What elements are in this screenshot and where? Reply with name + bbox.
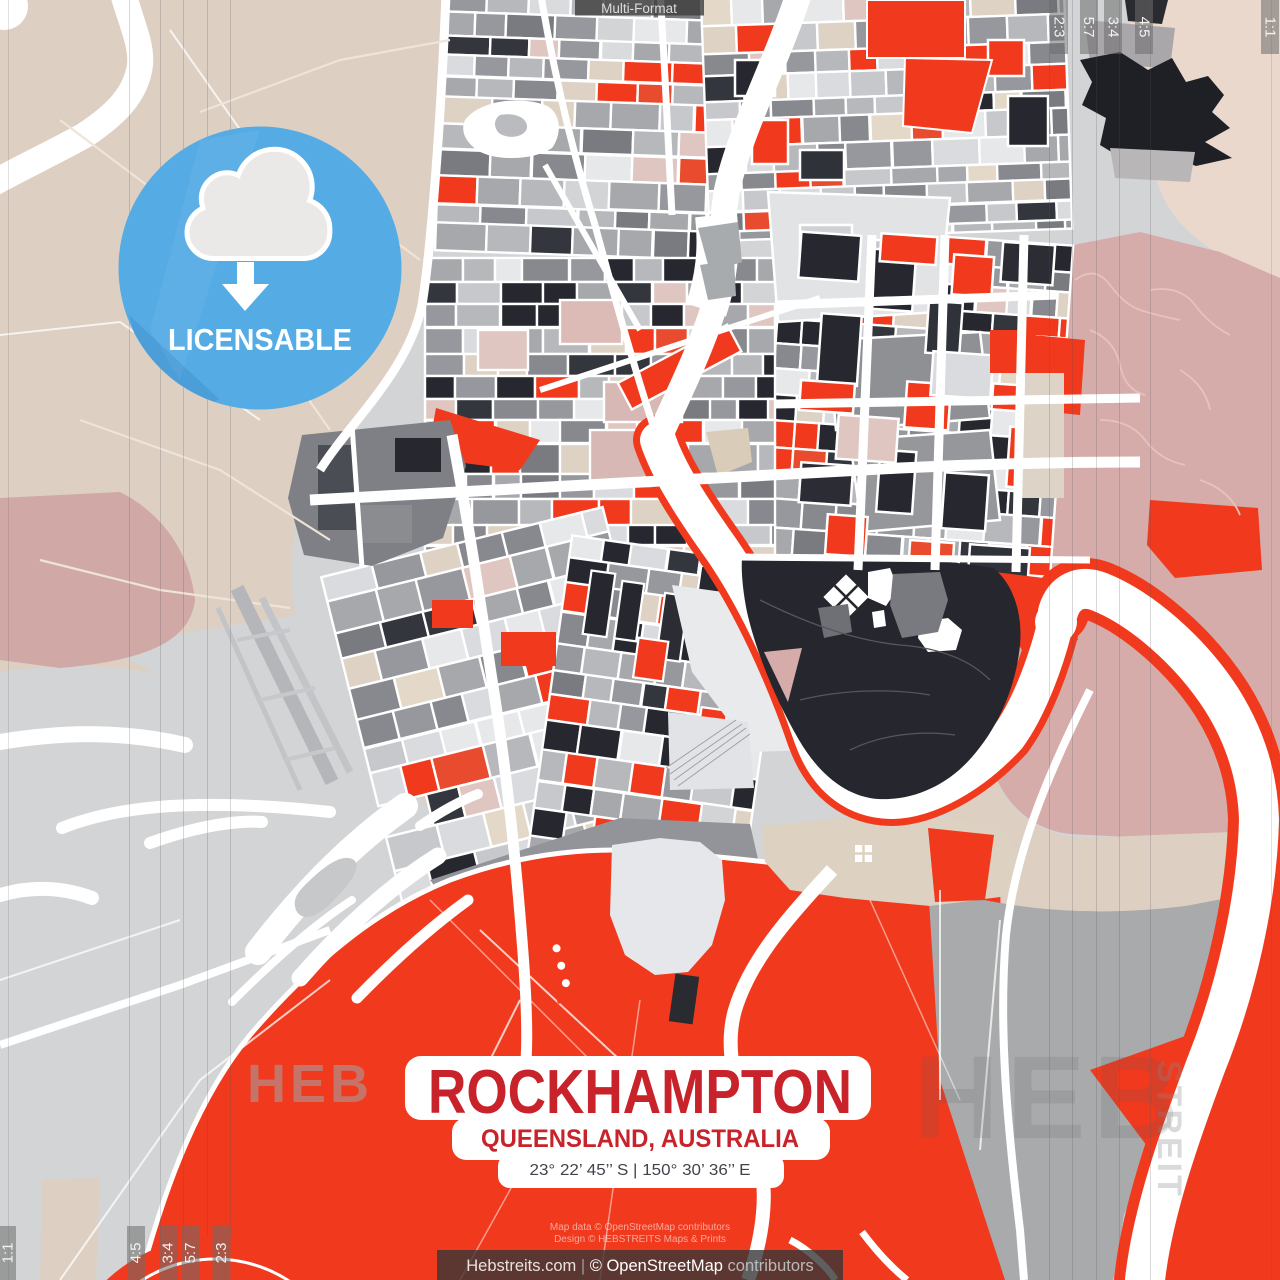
- svg-text:LICENSABLE: LICENSABLE: [168, 322, 352, 357]
- svg-text:3:4: 3:4: [1105, 17, 1122, 38]
- svg-text:HEB: HEB: [913, 1032, 1186, 1164]
- svg-text:23° 22’ 45’’ S | 150° 30’: 23° 22’ 45’’ S | 150° 30’ 36’’ E: [530, 1162, 751, 1179]
- svg-text:1:1: 1:1: [0, 1243, 17, 1264]
- svg-text:ROCKHAMPTON: ROCKHAMPTON: [428, 1058, 852, 1127]
- svg-text:Multi-Format: Multi-Format: [601, 1, 677, 16]
- svg-text:Map data © OpenStreetMap contr: Map data © OpenStreetMap contributors: [550, 1222, 730, 1233]
- svg-text:QUEENSLAND, AUSTRALIA: QUEENSLAND, AUSTRALIA: [481, 1125, 799, 1153]
- svg-text:4:5: 4:5: [1136, 17, 1153, 38]
- svg-text:3:4: 3:4: [160, 1243, 177, 1264]
- svg-text:Design © HEBSTREITS Maps & Pri: Design © HEBSTREITS Maps & Prints: [554, 1234, 726, 1245]
- svg-text:2:3: 2:3: [1051, 17, 1068, 38]
- svg-text:4:5: 4:5: [128, 1243, 145, 1264]
- svg-text:2:3: 2:3: [213, 1243, 230, 1264]
- svg-text:1:1: 1:1: [1262, 17, 1279, 38]
- svg-text:5:7: 5:7: [1080, 17, 1097, 38]
- svg-text:HEB: HEB: [247, 1054, 373, 1114]
- svg-text:Hebstreits.com | © OpenStreetM: Hebstreits.com | © OpenStreetMap contrib…: [466, 1257, 814, 1275]
- svg-text:5:7: 5:7: [182, 1243, 199, 1264]
- svg-text:STREIT: STREIT: [1150, 1060, 1188, 1199]
